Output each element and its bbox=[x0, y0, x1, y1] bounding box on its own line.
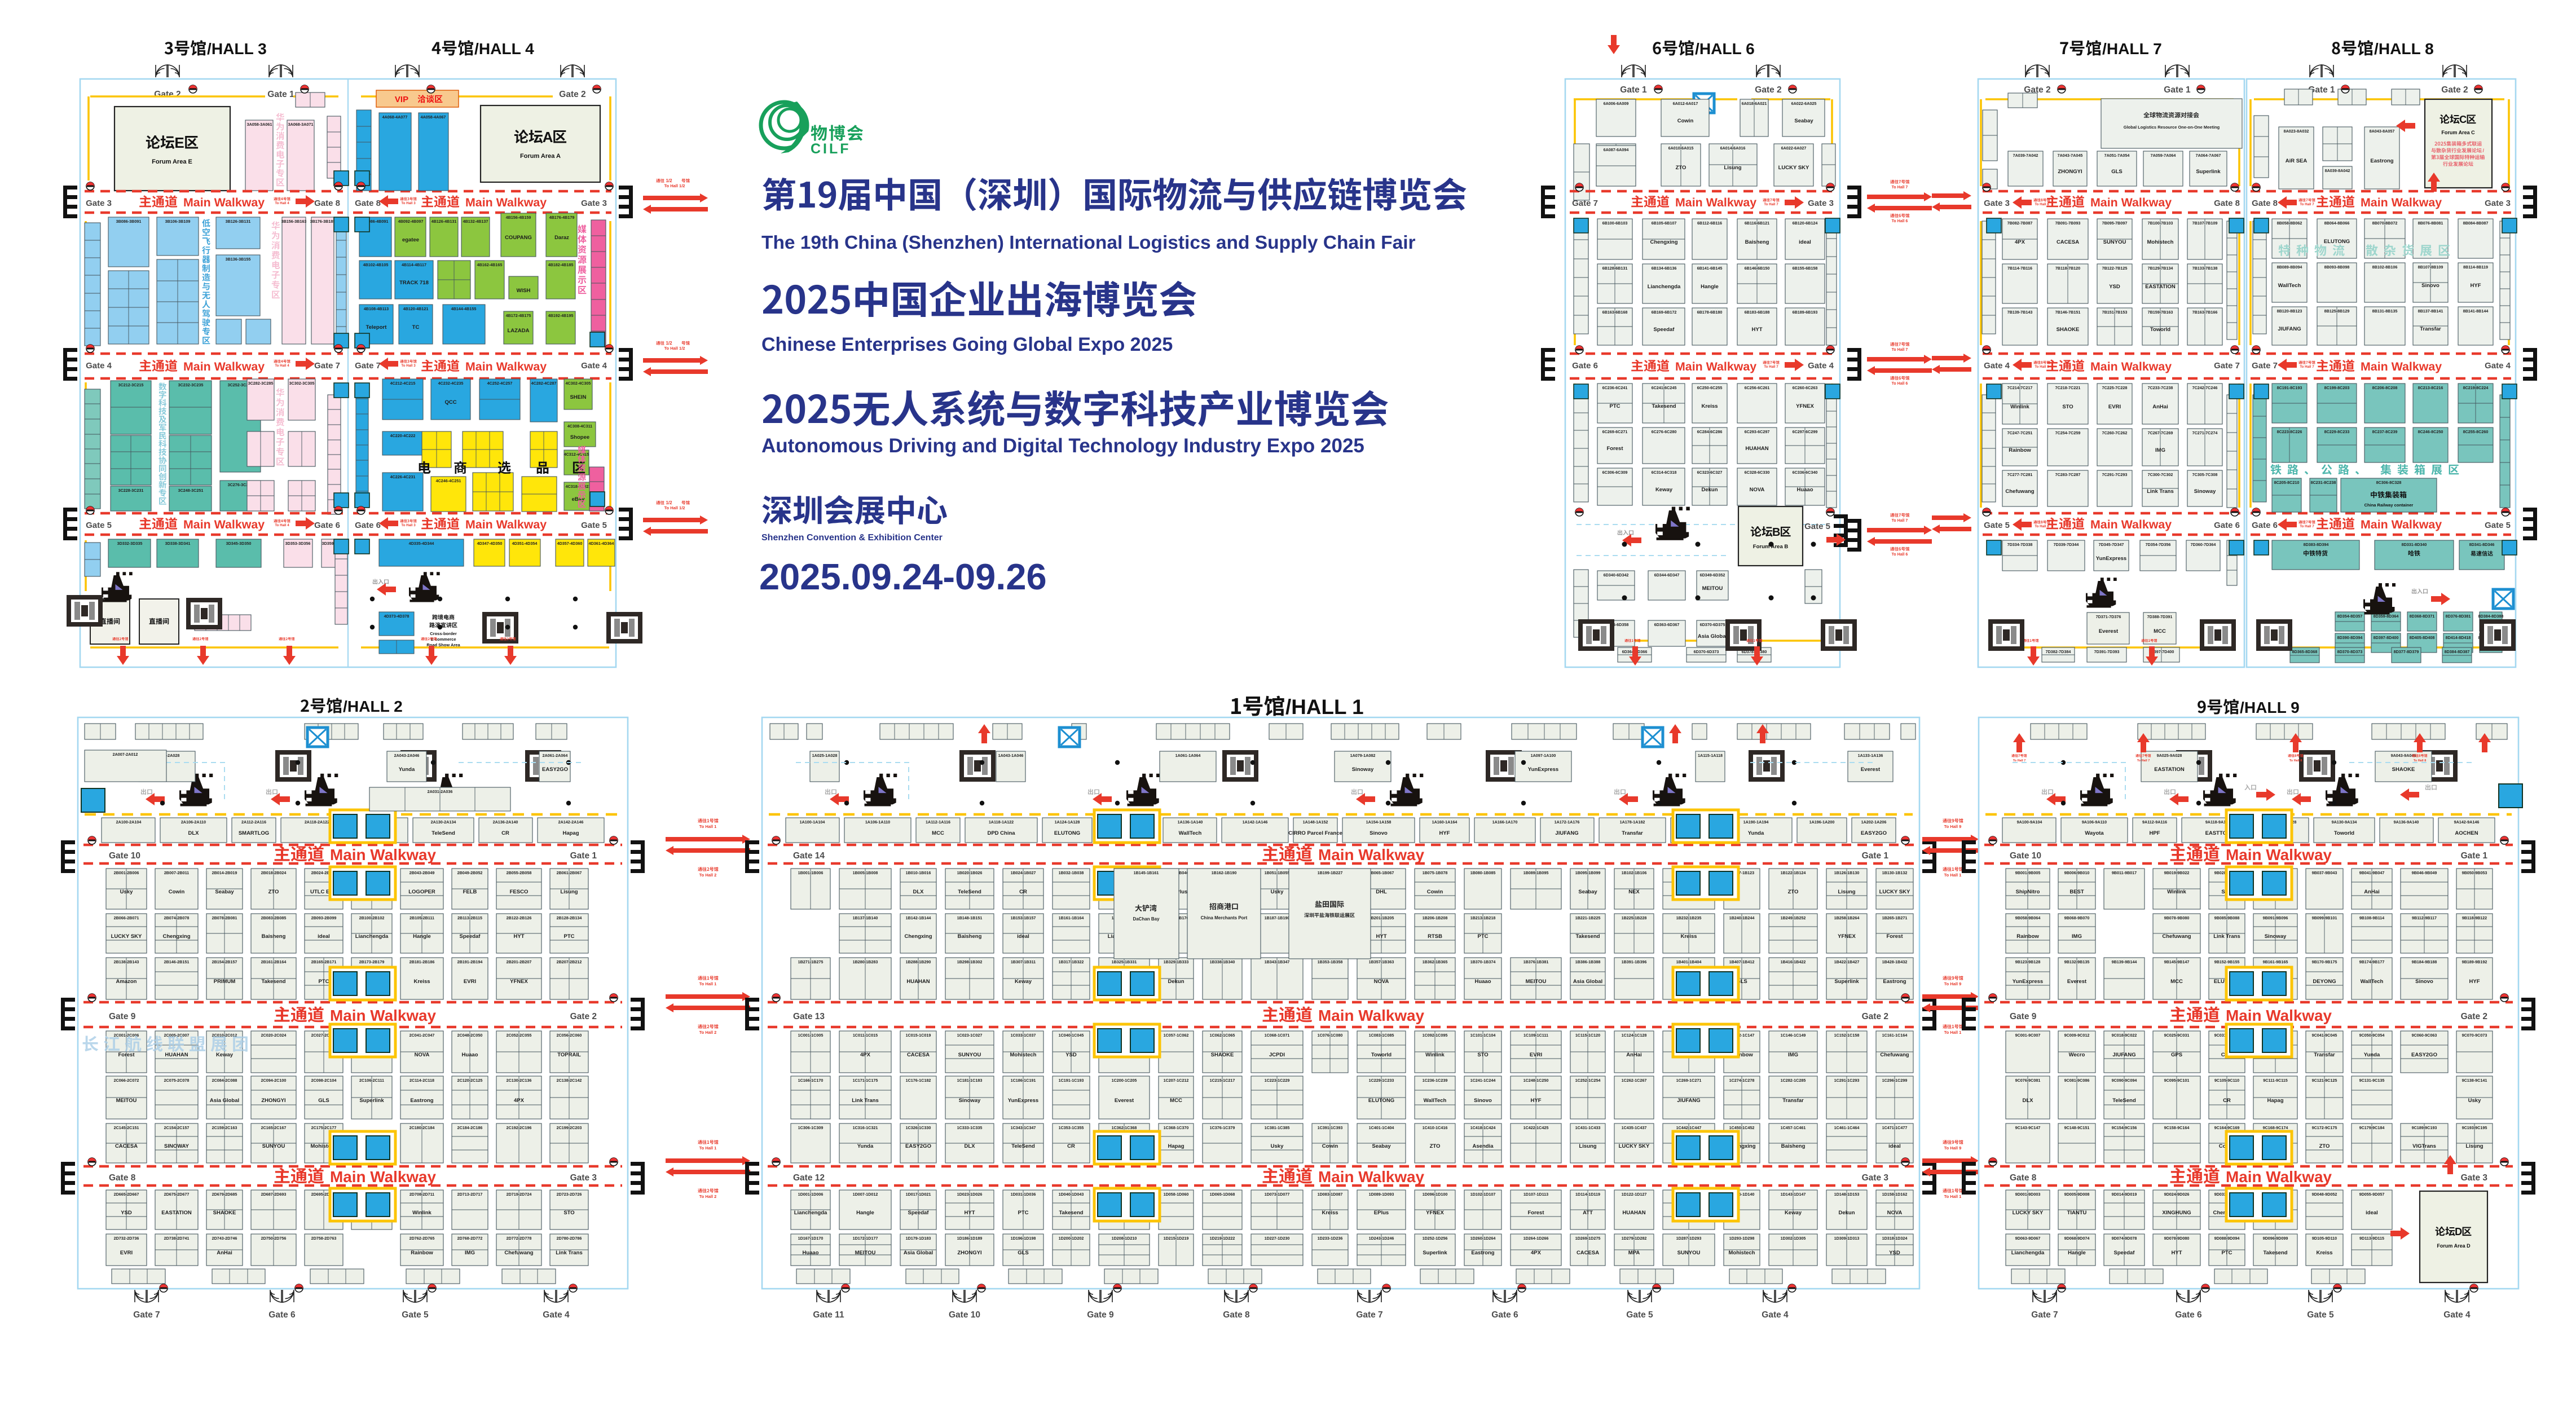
svg-text:2C056-2C060: 2C056-2C060 bbox=[557, 1033, 582, 1038]
svg-text:E-commerce: E-commerce bbox=[430, 637, 456, 642]
svg-text:2C138-2C142: 2C138-2C142 bbox=[557, 1078, 582, 1083]
svg-text:7B107-7B109: 7B107-7B109 bbox=[2192, 221, 2218, 226]
svg-text:1B065-1B067: 1B065-1B067 bbox=[1369, 870, 1394, 875]
svg-text:9B123-9B128: 9B123-9B128 bbox=[2015, 959, 2041, 964]
svg-text:8C219-8C224: 8C219-8C224 bbox=[2463, 385, 2489, 390]
svg-text:EVRI: EVRI bbox=[120, 1250, 133, 1256]
svg-text:To Hall 8: To Hall 8 bbox=[2035, 525, 2049, 528]
svg-text:YFNEX: YFNEX bbox=[1796, 403, 1814, 409]
svg-text:DLX: DLX bbox=[913, 889, 924, 895]
svg-text:2B055-2B058: 2B055-2B058 bbox=[507, 870, 532, 875]
svg-text:1A142-1A146: 1A142-1A146 bbox=[1243, 819, 1268, 825]
svg-text:7C291-7C293: 7C291-7C293 bbox=[2102, 472, 2128, 477]
svg-text:Link Trans: Link Trans bbox=[556, 1250, 583, 1256]
svg-text:Cowin: Cowin bbox=[1677, 118, 1694, 124]
svg-text:9B118-9B122: 9B118-9B122 bbox=[2462, 915, 2487, 920]
svg-text:4D361-4D364: 4D361-4D364 bbox=[589, 541, 614, 546]
svg-text:2B173-2B179: 2B173-2B179 bbox=[359, 959, 385, 964]
svg-text:2D713-2D717: 2D713-2D717 bbox=[457, 1192, 483, 1197]
svg-text:6B141-6B145: 6B141-6B145 bbox=[1697, 266, 1723, 271]
svg-text:Gate 5: Gate 5 bbox=[1984, 521, 2010, 530]
svg-text:4C226-4C231: 4C226-4C231 bbox=[390, 474, 416, 479]
svg-text:2B165-2B171: 2B165-2B171 bbox=[311, 959, 337, 964]
svg-text:1C333-1C335: 1C333-1C335 bbox=[957, 1125, 983, 1130]
svg-text:1C161-1C164: 1C161-1C164 bbox=[1882, 1033, 1908, 1038]
svg-text:ZTO: ZTO bbox=[1788, 889, 1799, 895]
svg-text:Gate 2: Gate 2 bbox=[1862, 1012, 1888, 1021]
svg-text:1C109-1C111: 1C109-1C111 bbox=[1523, 1033, 1548, 1038]
svg-text:2B100-2B102: 2B100-2B102 bbox=[359, 915, 385, 920]
svg-text:Seabay: Seabay bbox=[1794, 118, 1813, 124]
svg-text:3C302-3C305: 3C302-3C305 bbox=[289, 381, 315, 386]
svg-text:Lianchengda: Lianchengda bbox=[1648, 284, 1681, 290]
svg-text:Chengxing: Chengxing bbox=[904, 933, 932, 940]
svg-text:1D227-1D230: 1D227-1D230 bbox=[1265, 1236, 1290, 1241]
svg-text:4C212-4C215: 4C212-4C215 bbox=[390, 381, 416, 386]
svg-text:Superlink: Superlink bbox=[359, 1098, 384, 1104]
svg-text:GLS: GLS bbox=[318, 1098, 329, 1104]
svg-text:1A124-1A128: 1A124-1A128 bbox=[1055, 819, 1080, 825]
svg-text:CR: CR bbox=[2223, 1098, 2231, 1104]
svg-text:Gate 8: Gate 8 bbox=[1223, 1310, 1250, 1320]
svg-text:Chengxing: Chengxing bbox=[162, 933, 190, 940]
svg-text:Amazon: Amazon bbox=[116, 979, 137, 985]
svg-text:To Hall 1: To Hall 1 bbox=[699, 981, 717, 986]
svg-text:2C075-2C078: 2C075-2C078 bbox=[164, 1078, 190, 1083]
svg-text:Gate 7: Gate 7 bbox=[355, 361, 381, 371]
svg-text:3D345-3D350: 3D345-3D350 bbox=[226, 541, 252, 546]
svg-text:ideal: ideal bbox=[1888, 1143, 1901, 1149]
svg-text:1D102-1D107: 1D102-1D107 bbox=[1470, 1192, 1496, 1197]
svg-text:1A202-1A206: 1A202-1A206 bbox=[1861, 819, 1887, 825]
svg-text:6B189-6B193: 6B189-6B193 bbox=[1793, 310, 1818, 315]
svg-text:1C316-1C321: 1C316-1C321 bbox=[853, 1125, 878, 1130]
svg-text:LOGOPER: LOGOPER bbox=[408, 889, 435, 895]
svg-text:7B082-7B087: 7B082-7B087 bbox=[2007, 221, 2033, 226]
svg-text:Hapag: Hapag bbox=[1168, 1143, 1184, 1149]
svg-text:6A014-6A016: 6A014-6A016 bbox=[1720, 146, 1746, 151]
svg-text:1D023-1D026: 1D023-1D026 bbox=[957, 1192, 983, 1197]
svg-text:3C228-3C231: 3C228-3C231 bbox=[118, 488, 144, 493]
svg-text:To Hall 7: To Hall 7 bbox=[1892, 348, 1908, 352]
svg-text:To Hall 8: To Hall 8 bbox=[2414, 759, 2427, 763]
svg-text:6C260-6C263: 6C260-6C263 bbox=[1793, 385, 1818, 390]
svg-text:Gate 14: Gate 14 bbox=[793, 851, 825, 861]
svg-text:Gate 6: Gate 6 bbox=[2252, 521, 2278, 530]
svg-text:1B280-1B283: 1B280-1B283 bbox=[853, 959, 878, 964]
svg-text:8D377-8D379: 8D377-8D379 bbox=[2394, 649, 2419, 654]
svg-text:8D405-8D408: 8D405-8D408 bbox=[2410, 635, 2435, 640]
svg-text:1D001-1D006: 1D001-1D006 bbox=[798, 1192, 824, 1197]
svg-text:1C001-1C005: 1C001-1C005 bbox=[798, 1033, 824, 1038]
svg-text:SUNYOU: SUNYOU bbox=[958, 1052, 981, 1058]
svg-text:Huaao: Huaao bbox=[461, 1052, 478, 1058]
svg-text:Gate 4: Gate 4 bbox=[2485, 361, 2511, 371]
svg-text:9B006-9B010: 9B006-9B010 bbox=[2064, 870, 2090, 875]
svg-text:1C353-1C355: 1C353-1C355 bbox=[1059, 1125, 1084, 1130]
svg-text:9C138-9C141: 9C138-9C141 bbox=[2462, 1078, 2487, 1083]
svg-text:GPS: GPS bbox=[2171, 1052, 2182, 1058]
svg-text:9B108-9B114: 9B108-9B114 bbox=[2359, 915, 2384, 920]
svg-text:JIUFANG: JIUFANG bbox=[1555, 830, 1578, 836]
svg-text:8D354-8D357: 8D354-8D357 bbox=[2337, 614, 2363, 619]
svg-text:Link Trans: Link Trans bbox=[2213, 933, 2240, 940]
svg-text:6B183-6B188: 6B183-6B188 bbox=[1745, 310, 1770, 315]
svg-text:Kreiss: Kreiss bbox=[1701, 403, 1718, 409]
svg-text:Takesend: Takesend bbox=[1575, 933, 1600, 940]
svg-text:1C248-1C250: 1C248-1C250 bbox=[1523, 1078, 1549, 1083]
svg-text:1D058-1D060: 1D058-1D060 bbox=[1164, 1192, 1189, 1197]
svg-text:To Hall 1/2: To Hall 1/2 bbox=[664, 183, 685, 188]
svg-text:1D065-1D068: 1D065-1D068 bbox=[1210, 1192, 1235, 1197]
svg-text:7D339-7D344: 7D339-7D344 bbox=[2054, 542, 2079, 547]
svg-text:2D738-2D741: 2D738-2D741 bbox=[164, 1236, 190, 1241]
svg-text:6A022-6A027: 6A022-6A027 bbox=[1781, 146, 1807, 151]
svg-text:HYF: HYF bbox=[2469, 979, 2480, 985]
svg-text:Sinovo: Sinovo bbox=[1474, 1098, 1492, 1104]
svg-text:Huaao: Huaao bbox=[802, 1250, 818, 1256]
svg-text:YunExpress: YunExpress bbox=[2096, 556, 2126, 562]
svg-text:2B078-2B081: 2B078-2B081 bbox=[212, 915, 237, 920]
svg-text:9B041-9B047: 9B041-9B047 bbox=[2359, 870, 2385, 875]
svg-text:1A166-1A170: 1A166-1A170 bbox=[1492, 819, 1518, 825]
svg-text:ideal: ideal bbox=[318, 933, 330, 940]
svg-text:2B066-2B071: 2B066-2B071 bbox=[114, 915, 139, 920]
svg-text:8D376-8D381: 8D376-8D381 bbox=[2446, 614, 2471, 619]
svg-text:4C252-4C257: 4C252-4C257 bbox=[487, 381, 513, 386]
svg-text:1C101-1C104: 1C101-1C104 bbox=[1470, 1033, 1496, 1038]
svg-text:9D024-9D026: 9D024-9D026 bbox=[2164, 1192, 2190, 1197]
svg-text:4B172-4B175: 4B172-4B175 bbox=[506, 313, 531, 318]
svg-text:8B120-8B123: 8B120-8B123 bbox=[2277, 309, 2302, 314]
svg-text:1B329-1B333: 1B329-1B333 bbox=[1164, 959, 1189, 964]
svg-text:SHAOKE: SHAOKE bbox=[1211, 1052, 1234, 1058]
svg-text:1B142-1B144: 1B142-1B144 bbox=[906, 915, 931, 920]
svg-text:1B005-1B008: 1B005-1B008 bbox=[853, 870, 878, 875]
svg-text:To Hall 1/2: To Hall 1/2 bbox=[664, 505, 685, 510]
svg-text:8D390-8D394: 8D390-8D394 bbox=[2337, 635, 2363, 640]
svg-text:1D172-1D177: 1D172-1D177 bbox=[853, 1236, 878, 1241]
svg-text:1B010-1B016: 1B010-1B016 bbox=[906, 870, 931, 875]
svg-text:EASY2GO: EASY2GO bbox=[1861, 830, 1887, 836]
svg-text:Yunda: Yunda bbox=[1748, 830, 1764, 836]
svg-text:1C068-1C071: 1C068-1C071 bbox=[1265, 1033, 1290, 1038]
svg-text:9B058-9B064: 9B058-9B064 bbox=[2015, 915, 2041, 920]
svg-text:CR: CR bbox=[501, 830, 509, 836]
svg-text:Gate 3: Gate 3 bbox=[581, 199, 607, 208]
svg-text:SHEIN: SHEIN bbox=[570, 394, 586, 400]
svg-text:Superlink: Superlink bbox=[2196, 169, 2221, 175]
svg-text:Main Walkway: Main Walkway bbox=[2226, 1168, 2332, 1186]
svg-text:Cowin: Cowin bbox=[1322, 1143, 1338, 1149]
svg-text:2D750-2D756: 2D750-2D756 bbox=[261, 1236, 287, 1241]
svg-text:CACESA: CACESA bbox=[1577, 1250, 1599, 1256]
svg-text:/HALL 4: /HALL 4 bbox=[474, 40, 534, 58]
svg-text:8C223-8C226: 8C223-8C226 bbox=[2277, 429, 2302, 434]
svg-text:1B298-1B302: 1B298-1B302 bbox=[957, 959, 983, 964]
svg-text:1C083-1C085: 1C083-1C085 bbox=[1369, 1033, 1394, 1038]
svg-text:6C256-6C261: 6C256-6C261 bbox=[1745, 385, 1770, 390]
svg-text:NEX: NEX bbox=[1628, 889, 1640, 895]
svg-text:SUNYOU: SUNYOU bbox=[1677, 1250, 1701, 1256]
svg-text:2D665-2D667: 2D665-2D667 bbox=[114, 1192, 139, 1197]
svg-text:4B192-4B195: 4B192-4B195 bbox=[548, 313, 574, 318]
svg-text:1C124-1C128: 1C124-1C128 bbox=[1622, 1033, 1647, 1038]
svg-text:MEITOU: MEITOU bbox=[1526, 979, 1547, 985]
svg-text:To Hall 1: To Hall 1 bbox=[699, 1145, 717, 1151]
svg-text:9D088-9D094: 9D088-9D094 bbox=[2214, 1236, 2240, 1241]
svg-text:Takesend: Takesend bbox=[2263, 1250, 2287, 1256]
svg-text:1B032-1B038: 1B032-1B038 bbox=[1059, 870, 1084, 875]
svg-text:Sinoway: Sinoway bbox=[959, 1098, 981, 1104]
svg-text:1B148-1B151: 1B148-1B151 bbox=[957, 915, 983, 920]
svg-text:3B126-3B131: 3B126-3B131 bbox=[226, 219, 251, 224]
svg-text:YFNEX: YFNEX bbox=[1426, 1210, 1444, 1216]
svg-text:1C171-1C175: 1C171-1C175 bbox=[853, 1078, 878, 1083]
svg-text:6D344-6D347: 6D344-6D347 bbox=[1654, 572, 1680, 578]
svg-text:Gate 8: Gate 8 bbox=[2010, 1173, 2037, 1183]
svg-text:8D368-8D371: 8D368-8D371 bbox=[2410, 614, 2435, 619]
svg-text:PTC: PTC bbox=[1018, 1210, 1029, 1216]
svg-text:To Hall 1: To Hall 1 bbox=[699, 824, 717, 829]
svg-text:9D005-9D008: 9D005-9D008 bbox=[2064, 1192, 2090, 1197]
svg-text:Gate 2: Gate 2 bbox=[2441, 85, 2468, 95]
svg-text:Gate 9: Gate 9 bbox=[1087, 1310, 1114, 1320]
svg-text:LUCKY SKY: LUCKY SKY bbox=[1879, 889, 1910, 895]
svg-text:CR: CR bbox=[1019, 889, 1027, 895]
svg-text:Main Walkway: Main Walkway bbox=[330, 1168, 437, 1186]
svg-text:Link Trans: Link Trans bbox=[2147, 488, 2174, 495]
svg-text:Hangle: Hangle bbox=[413, 933, 431, 940]
svg-text:9B170-9B175: 9B170-9B175 bbox=[2312, 959, 2337, 964]
svg-text:Gate 10: Gate 10 bbox=[949, 1310, 980, 1320]
svg-text:1D252-1D256: 1D252-1D256 bbox=[1423, 1236, 1448, 1241]
svg-text:JIUFANG: JIUFANG bbox=[1677, 1098, 1700, 1104]
svg-text:Lianchengda: Lianchengda bbox=[794, 1210, 827, 1216]
svg-text:7B100-7B103: 7B100-7B103 bbox=[2148, 221, 2173, 226]
svg-text:8B125-8B129: 8B125-8B129 bbox=[2324, 309, 2350, 314]
svg-text:1C152-1C158: 1C152-1C158 bbox=[1834, 1033, 1860, 1038]
svg-text:Usky: Usky bbox=[2468, 1098, 2481, 1104]
svg-text:9C070-9C073: 9C070-9C073 bbox=[2462, 1033, 2487, 1038]
svg-text:SHAOKE: SHAOKE bbox=[2392, 766, 2415, 773]
svg-text:1D040-1D043: 1D040-1D043 bbox=[1059, 1192, 1084, 1197]
svg-text:2D772-2D778: 2D772-2D778 bbox=[507, 1236, 532, 1241]
svg-text:2C048-2C050: 2C048-2C050 bbox=[457, 1033, 483, 1038]
svg-text:Gate 3: Gate 3 bbox=[570, 1173, 597, 1183]
svg-text:1C033-1C037: 1C033-1C037 bbox=[1011, 1033, 1036, 1038]
svg-text:Yunda: Yunda bbox=[2364, 1052, 2380, 1058]
svg-text:EASTATION: EASTATION bbox=[2154, 766, 2185, 773]
svg-text:ZHONGYI: ZHONGYI bbox=[957, 1250, 981, 1256]
svg-text:2C154-2C157: 2C154-2C157 bbox=[164, 1125, 190, 1130]
svg-text:6A022-6A025: 6A022-6A025 bbox=[1791, 101, 1817, 106]
svg-text:9D113-9D115: 9D113-9D115 bbox=[2359, 1236, 2384, 1241]
svg-text:/HALL 3: /HALL 3 bbox=[207, 40, 267, 58]
svg-text:SUNYOU: SUNYOU bbox=[2103, 239, 2126, 245]
svg-text:1B206-1B208: 1B206-1B208 bbox=[1423, 915, 1448, 920]
svg-text:1B161-1B164: 1B161-1B164 bbox=[1059, 915, 1084, 920]
svg-text:9A112-9A116: 9A112-9A116 bbox=[2142, 819, 2167, 825]
svg-text:1C040-1C045: 1C040-1C045 bbox=[1059, 1033, 1084, 1038]
svg-text:Gate 9: Gate 9 bbox=[2010, 1012, 2037, 1021]
svg-text:3B136-3B155: 3B136-3B155 bbox=[226, 257, 251, 262]
svg-text:4PX: 4PX bbox=[2015, 239, 2025, 245]
svg-text:1A196-1A200: 1A196-1A200 bbox=[1809, 819, 1835, 825]
svg-text:1B376-1B381: 1B376-1B381 bbox=[1523, 959, 1549, 964]
svg-text:PTC: PTC bbox=[564, 933, 575, 940]
svg-text:Cowin: Cowin bbox=[169, 889, 185, 895]
svg-text:6C250-6C255: 6C250-6C255 bbox=[1697, 385, 1723, 390]
svg-text:2A007-2A012: 2A007-2A012 bbox=[113, 752, 138, 757]
svg-text:HUAHAN: HUAHAN bbox=[1745, 446, 1768, 452]
svg-text:6C269-6C271: 6C269-6C271 bbox=[1602, 429, 1628, 434]
svg-text:1A133-1A136: 1A133-1A136 bbox=[1858, 753, 1883, 758]
svg-text:Gate 2: Gate 2 bbox=[559, 90, 585, 99]
svg-text:HPF: HPF bbox=[2150, 830, 2160, 836]
svg-text:8D397-8D400: 8D397-8D400 bbox=[2374, 635, 2399, 640]
svg-text:IMG: IMG bbox=[2072, 933, 2082, 940]
svg-text:6C314-6C318: 6C314-6C318 bbox=[1652, 470, 1677, 475]
svg-text:1D122-1D127: 1D122-1D127 bbox=[1622, 1192, 1647, 1197]
svg-text:1A106-1A110: 1A106-1A110 bbox=[865, 819, 890, 825]
svg-text:TeleSend: TeleSend bbox=[2112, 1098, 2136, 1104]
svg-text:Asia Global: Asia Global bbox=[1698, 633, 1727, 640]
svg-text:1B338-1B340: 1B338-1B340 bbox=[1210, 959, 1235, 964]
svg-text:9B174-9B177: 9B174-9B177 bbox=[2359, 959, 2385, 964]
svg-text:ZHONGYI: ZHONGYI bbox=[261, 1098, 285, 1104]
svg-text:2C199-2C203: 2C199-2C203 bbox=[557, 1125, 582, 1130]
svg-text:Forest: Forest bbox=[1886, 933, 1903, 940]
svg-text:MCC: MCC bbox=[2154, 628, 2166, 634]
svg-text:YunExpress: YunExpress bbox=[1528, 766, 1558, 773]
svg-text:E: E bbox=[174, 134, 184, 151]
svg-text:YFNEX: YFNEX bbox=[1838, 933, 1856, 940]
svg-text:STO: STO bbox=[2062, 404, 2073, 410]
svg-text:8C231-8C238: 8C231-8C238 bbox=[2311, 480, 2336, 485]
svg-text:HYF: HYF bbox=[1531, 1098, 1542, 1104]
svg-text:1B001-1B006: 1B001-1B006 bbox=[798, 870, 824, 875]
svg-text:6A087-6A094: 6A087-6A094 bbox=[1604, 147, 1629, 152]
svg-text:1B199-1B227: 1B199-1B227 bbox=[1318, 870, 1343, 875]
svg-text:China Railway container: China Railway container bbox=[2364, 503, 2414, 508]
svg-text:1/2: 1/2 bbox=[666, 178, 672, 183]
svg-text:EPlus: EPlus bbox=[1374, 1210, 1389, 1216]
svg-text:1B126-1B130: 1B126-1B130 bbox=[1834, 870, 1860, 875]
svg-text:Rainbow: Rainbow bbox=[2016, 933, 2039, 940]
svg-text:7C225-7C228: 7C225-7C228 bbox=[2102, 385, 2128, 390]
svg-text:9D055-9D057: 9D055-9D057 bbox=[2359, 1192, 2385, 1197]
svg-text:1C343-1C347: 1C343-1C347 bbox=[1011, 1125, 1036, 1130]
svg-text:9C050-9C054: 9C050-9C054 bbox=[2359, 1033, 2385, 1038]
svg-text:1/2: 1/2 bbox=[666, 341, 672, 346]
svg-text:2A061-2A064: 2A061-2A064 bbox=[543, 753, 568, 758]
svg-text:Gate 6: Gate 6 bbox=[314, 521, 340, 530]
svg-text:1B317-1B322: 1B317-1B322 bbox=[1059, 959, 1084, 964]
svg-text:Forum Area E: Forum Area E bbox=[152, 158, 192, 165]
svg-text:1B024-1B027: 1B024-1B027 bbox=[1011, 870, 1036, 875]
svg-text:9A136-9A140: 9A136-9A140 bbox=[2394, 819, 2419, 825]
svg-text:1C023-1C027: 1C023-1C027 bbox=[957, 1033, 983, 1038]
svg-text:COUPANG: COUPANG bbox=[505, 235, 532, 241]
svg-text:1C376-1C379: 1C376-1C379 bbox=[1210, 1125, 1235, 1130]
svg-text:1C381-1C385: 1C381-1C385 bbox=[1265, 1125, 1290, 1130]
svg-text:7B129-7B134: 7B129-7B134 bbox=[2148, 266, 2173, 271]
svg-text:Everest: Everest bbox=[1861, 766, 1881, 773]
svg-text:TC: TC bbox=[412, 324, 420, 330]
svg-text:Yunda: Yunda bbox=[857, 1143, 874, 1149]
svg-text:Shenzhen Convention & Exhibiti: Shenzhen Convention & Exhibition Center bbox=[761, 533, 943, 543]
svg-text:9A106-9A110: 9A106-9A110 bbox=[2082, 819, 2107, 825]
svg-text:9C179-9C184: 9C179-9C184 bbox=[2359, 1125, 2385, 1130]
svg-text:To Hall 1: To Hall 1 bbox=[1944, 1030, 1962, 1035]
svg-text:Gate 5: Gate 5 bbox=[1804, 522, 1830, 531]
svg-text:1D148-1D153: 1D148-1D153 bbox=[1834, 1192, 1860, 1197]
svg-text:Toworld: Toworld bbox=[1371, 1052, 1392, 1058]
svg-text:Kreiss: Kreiss bbox=[1680, 933, 1697, 940]
svg-text:2D679-2D685: 2D679-2D685 bbox=[212, 1192, 237, 1197]
svg-text:9B037-9B043: 9B037-9B043 bbox=[2312, 870, 2337, 875]
svg-text:4C282-4C287: 4C282-4C287 bbox=[531, 381, 557, 386]
svg-text:1B401-1B404: 1B401-1B404 bbox=[1676, 959, 1702, 964]
svg-text:7D334-7D338: 7D334-7D338 bbox=[2007, 542, 2033, 547]
svg-text:1B020-1B026: 1B020-1B026 bbox=[957, 870, 983, 875]
svg-text:Gate 5: Gate 5 bbox=[581, 521, 607, 530]
svg-text:2B191-2B194: 2B191-2B194 bbox=[457, 959, 483, 964]
svg-text:8A039-8A042: 8A039-8A042 bbox=[2325, 168, 2350, 173]
svg-text:9C009-9C012: 9C009-9C012 bbox=[2064, 1033, 2090, 1038]
svg-text:1A097-1A100: 1A097-1A100 bbox=[1531, 753, 1556, 758]
svg-text:TeleSend: TeleSend bbox=[431, 830, 455, 836]
svg-text:6B134-6B136: 6B134-6B136 bbox=[1652, 266, 1677, 271]
svg-text:Main Walkway: Main Walkway bbox=[183, 518, 265, 531]
svg-text:1D158-1D162: 1D158-1D162 bbox=[1882, 1192, 1908, 1197]
svg-text:Main Walkway: Main Walkway bbox=[2226, 1007, 2332, 1024]
svg-text:MEITOU: MEITOU bbox=[855, 1250, 876, 1256]
svg-text:1B370-1B374: 1B370-1B374 bbox=[1470, 959, 1496, 964]
svg-text:BEST: BEST bbox=[2069, 889, 2084, 895]
svg-text:PTC: PTC bbox=[1478, 933, 1489, 940]
svg-text:9B152-9B155: 9B152-9B155 bbox=[2214, 959, 2240, 964]
svg-text:To Hall 8: To Hall 8 bbox=[2035, 365, 2049, 369]
svg-text:9C060-9C063: 9C060-9C063 bbox=[2412, 1033, 2437, 1038]
svg-text:8B064-8B066: 8B064-8B066 bbox=[2324, 221, 2350, 226]
svg-text:1D200-1D202: 1D200-1D202 bbox=[1059, 1236, 1084, 1241]
svg-text:EVRI: EVRI bbox=[464, 979, 476, 985]
svg-text:1C146-1C149: 1C146-1C149 bbox=[1781, 1033, 1806, 1038]
svg-text:1C410-1C416: 1C410-1C416 bbox=[1423, 1125, 1448, 1130]
svg-text:1B258-1B264: 1B258-1B264 bbox=[1834, 915, 1860, 920]
svg-text:2D719-2D724: 2D719-2D724 bbox=[507, 1192, 532, 1197]
svg-text:Link Trans: Link Trans bbox=[852, 1098, 879, 1104]
svg-text:1C166-1C170: 1C166-1C170 bbox=[798, 1078, 824, 1083]
svg-text:Shopee: Shopee bbox=[570, 434, 589, 440]
svg-text:HYT: HYT bbox=[965, 1210, 975, 1216]
svg-text:LUCKY SKY: LUCKY SKY bbox=[2013, 1210, 2044, 1216]
svg-text:2D743-2D746: 2D743-2D746 bbox=[212, 1236, 237, 1241]
svg-text:Speedaf: Speedaf bbox=[460, 933, 481, 940]
svg-text:7C247-7C251: 7C247-7C251 bbox=[2007, 430, 2033, 435]
svg-text:2B207-2B212: 2B207-2B212 bbox=[557, 959, 582, 964]
svg-text:Seabay: Seabay bbox=[215, 889, 234, 895]
svg-text:1C431-1C433: 1C431-1C433 bbox=[1575, 1125, 1601, 1130]
svg-text:1C176-1C182: 1C176-1C182 bbox=[906, 1078, 931, 1083]
svg-text:2D780-2D786: 2D780-2D786 bbox=[557, 1236, 582, 1241]
svg-text:To Hall 7: To Hall 7 bbox=[2300, 365, 2314, 369]
svg-text:9C041-9C045: 9C041-9C045 bbox=[2312, 1033, 2337, 1038]
svg-text:8C306-8C328: 8C306-8C328 bbox=[2376, 480, 2402, 485]
svg-text:Autonomous Driving and Digital: Autonomous Driving and Digital Technolog… bbox=[761, 435, 1364, 457]
